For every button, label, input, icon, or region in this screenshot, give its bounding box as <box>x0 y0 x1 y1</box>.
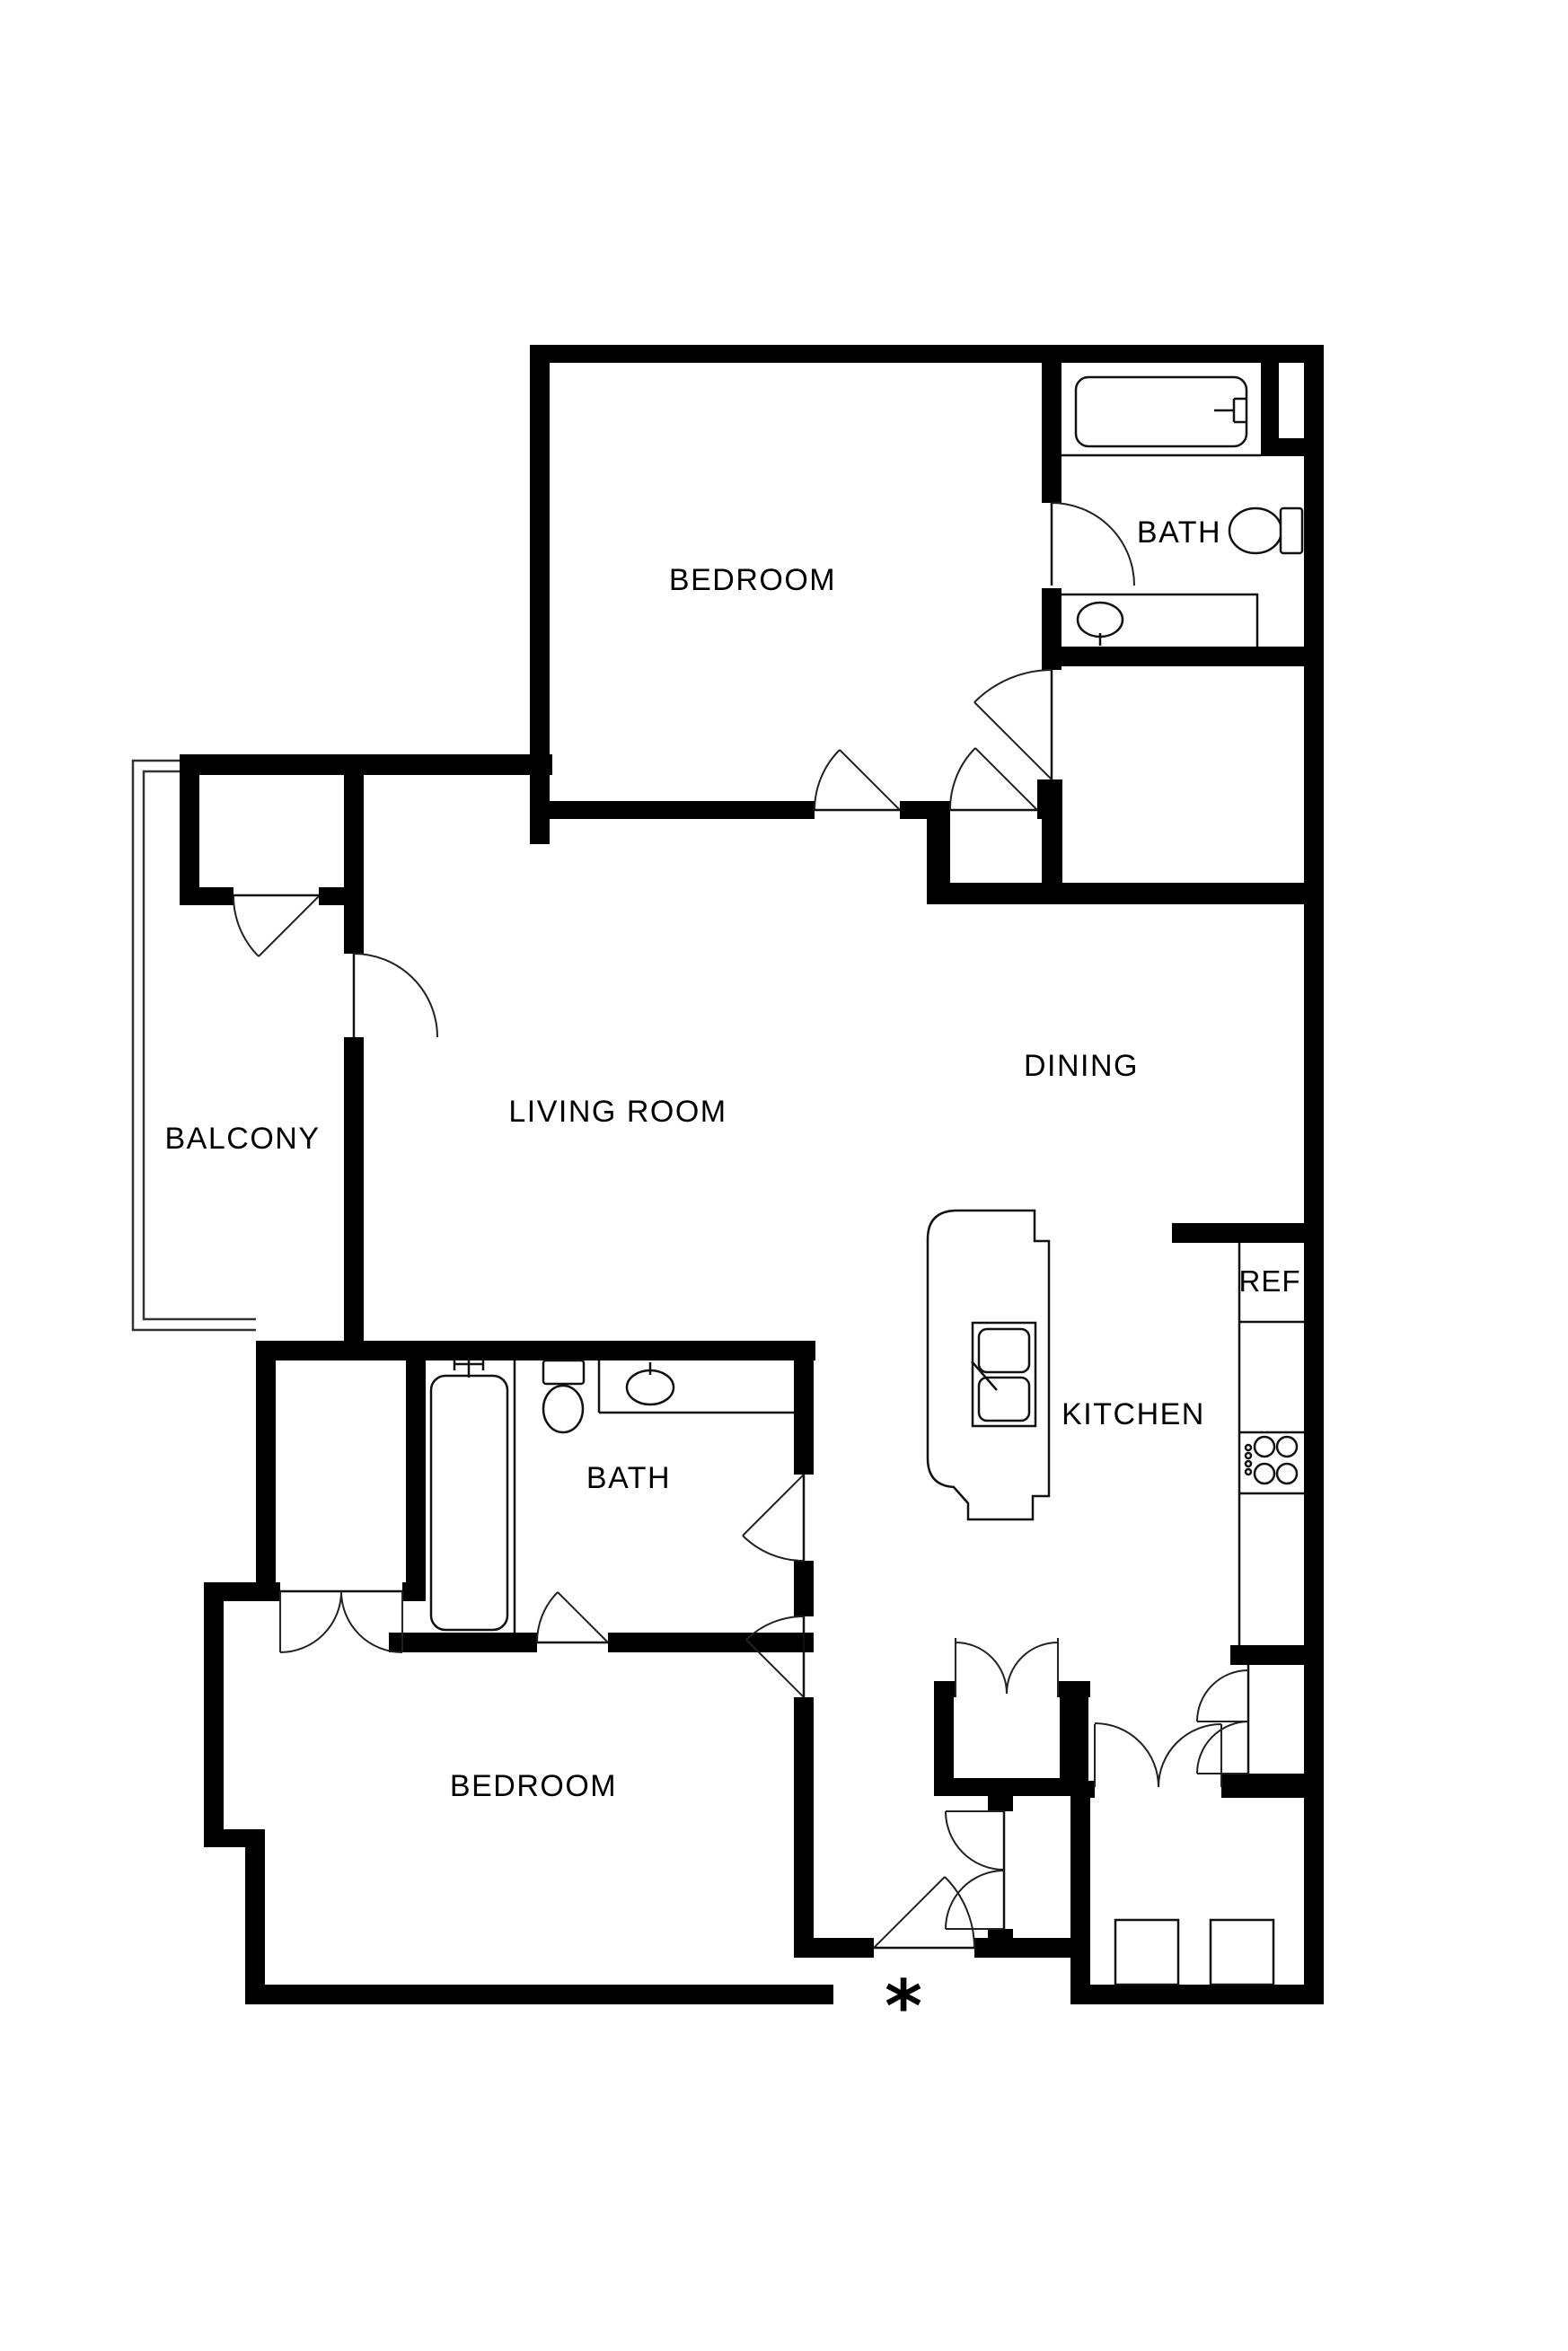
wall-segment <box>988 1929 1013 1944</box>
door-swing-bedroom-top <box>815 750 900 810</box>
washer-icon <box>1115 1920 1178 1985</box>
wall-segment <box>1042 647 1324 666</box>
wall-segment <box>1042 363 1061 503</box>
entry-marker: * <box>885 1965 922 2048</box>
stove-icon <box>1246 1437 1297 1484</box>
toilet-icon <box>1229 508 1302 553</box>
railing-inner-line <box>144 771 256 1319</box>
wall-segment <box>1070 1985 1324 2004</box>
wall-segment <box>256 1341 815 1360</box>
wall-segment <box>1230 1645 1324 1665</box>
label-refrigerator: REF <box>1239 1264 1301 1298</box>
wall-segment <box>256 1341 276 1601</box>
wall-segment <box>180 887 233 905</box>
wall-segment <box>534 801 815 819</box>
fixtures <box>431 377 1302 1985</box>
room-label-bedroom-top: BEDROOM <box>669 563 836 597</box>
door-swing-bedroom-bottom <box>746 1616 804 1697</box>
wall-segment <box>1279 438 1304 456</box>
wall-segment <box>794 1341 814 1475</box>
wall-segment <box>927 883 1324 904</box>
floorplan-page: BEDROOM BATH DINING LIVING ROOM BALCONY … <box>0 0 1568 2351</box>
door-swing-reachin-closet <box>950 748 1037 810</box>
room-label-kitchen: KITCHEN <box>1061 1397 1205 1431</box>
wall-segment <box>344 1037 364 1360</box>
wall-segment <box>988 1796 1013 1811</box>
wall-segment <box>1070 1781 1090 2004</box>
room-label-balcony: BALCONY <box>165 1122 321 1156</box>
wall-segment <box>204 1582 224 1847</box>
sink-icon <box>1078 603 1123 646</box>
wall-segment <box>180 754 199 905</box>
wall-segment <box>794 1697 814 1958</box>
bathtub-icon <box>431 1358 507 1630</box>
sink-icon <box>627 1362 674 1404</box>
doors <box>233 503 1248 1948</box>
toilet-icon <box>543 1360 584 1432</box>
bathtub-icon <box>1076 377 1246 446</box>
door-swing-bottom-bath-east <box>743 1475 804 1561</box>
wall-segment <box>344 775 364 954</box>
wall-segment <box>927 819 950 886</box>
door-swing-foyer-double <box>1095 1723 1221 1787</box>
wall-segment <box>1172 1223 1324 1243</box>
door-swing-linen-closet-double <box>946 1811 1004 1929</box>
wall-segment <box>389 1633 537 1652</box>
room-label-bath-bottom: BATH <box>586 1461 671 1495</box>
floorplan-canvas: BEDROOM BATH DINING LIVING ROOM BALCONY … <box>0 0 1568 2351</box>
wall-segment <box>1037 779 1062 819</box>
door-swing-foyer-closet-double <box>1197 1670 1248 1774</box>
wall-segment <box>1261 363 1279 456</box>
kitchen-island <box>928 1211 1049 1519</box>
door-swing-balcony-storage <box>233 896 319 956</box>
door-swing-balcony <box>354 954 437 1037</box>
wall-segment <box>530 345 1324 363</box>
door-swing-bottom-bath-south <box>537 1592 608 1642</box>
room-labels: BEDROOM BATH DINING LIVING ROOM BALCONY … <box>165 515 1301 2048</box>
wall-segment <box>900 801 950 819</box>
door-swing-bottom-closet-double <box>280 1591 402 1652</box>
thin-lines <box>233 455 1304 1948</box>
wall-segment <box>934 1778 1088 1796</box>
wall-segment <box>1070 1781 1095 1798</box>
room-label-bedroom-bottom: BEDROOM <box>450 1769 617 1803</box>
door-swing-walkin-closet <box>974 670 1052 779</box>
door-swing-entry <box>874 1877 974 1948</box>
room-label-dining: DINING <box>1024 1049 1139 1083</box>
wall-segment <box>406 1360 426 1601</box>
wall-segment <box>1304 345 1324 2004</box>
room-label-bath-top: BATH <box>1137 515 1221 550</box>
wall-segment <box>245 1829 265 2004</box>
wall-segment <box>814 1938 874 1958</box>
wall-segment <box>245 1985 833 2004</box>
door-swing-top-bath <box>1052 503 1134 586</box>
door-swing-laundry-closet-double <box>956 1638 1058 1697</box>
wall-segment <box>794 1561 814 1616</box>
wall-segment <box>180 754 552 775</box>
dryer-icon <box>1211 1920 1273 1985</box>
wall-segment <box>1221 1774 1304 1798</box>
wall-segment <box>608 1633 814 1652</box>
tub-faucet-icon <box>454 1358 483 1378</box>
room-label-living-room: LIVING ROOM <box>508 1095 727 1129</box>
